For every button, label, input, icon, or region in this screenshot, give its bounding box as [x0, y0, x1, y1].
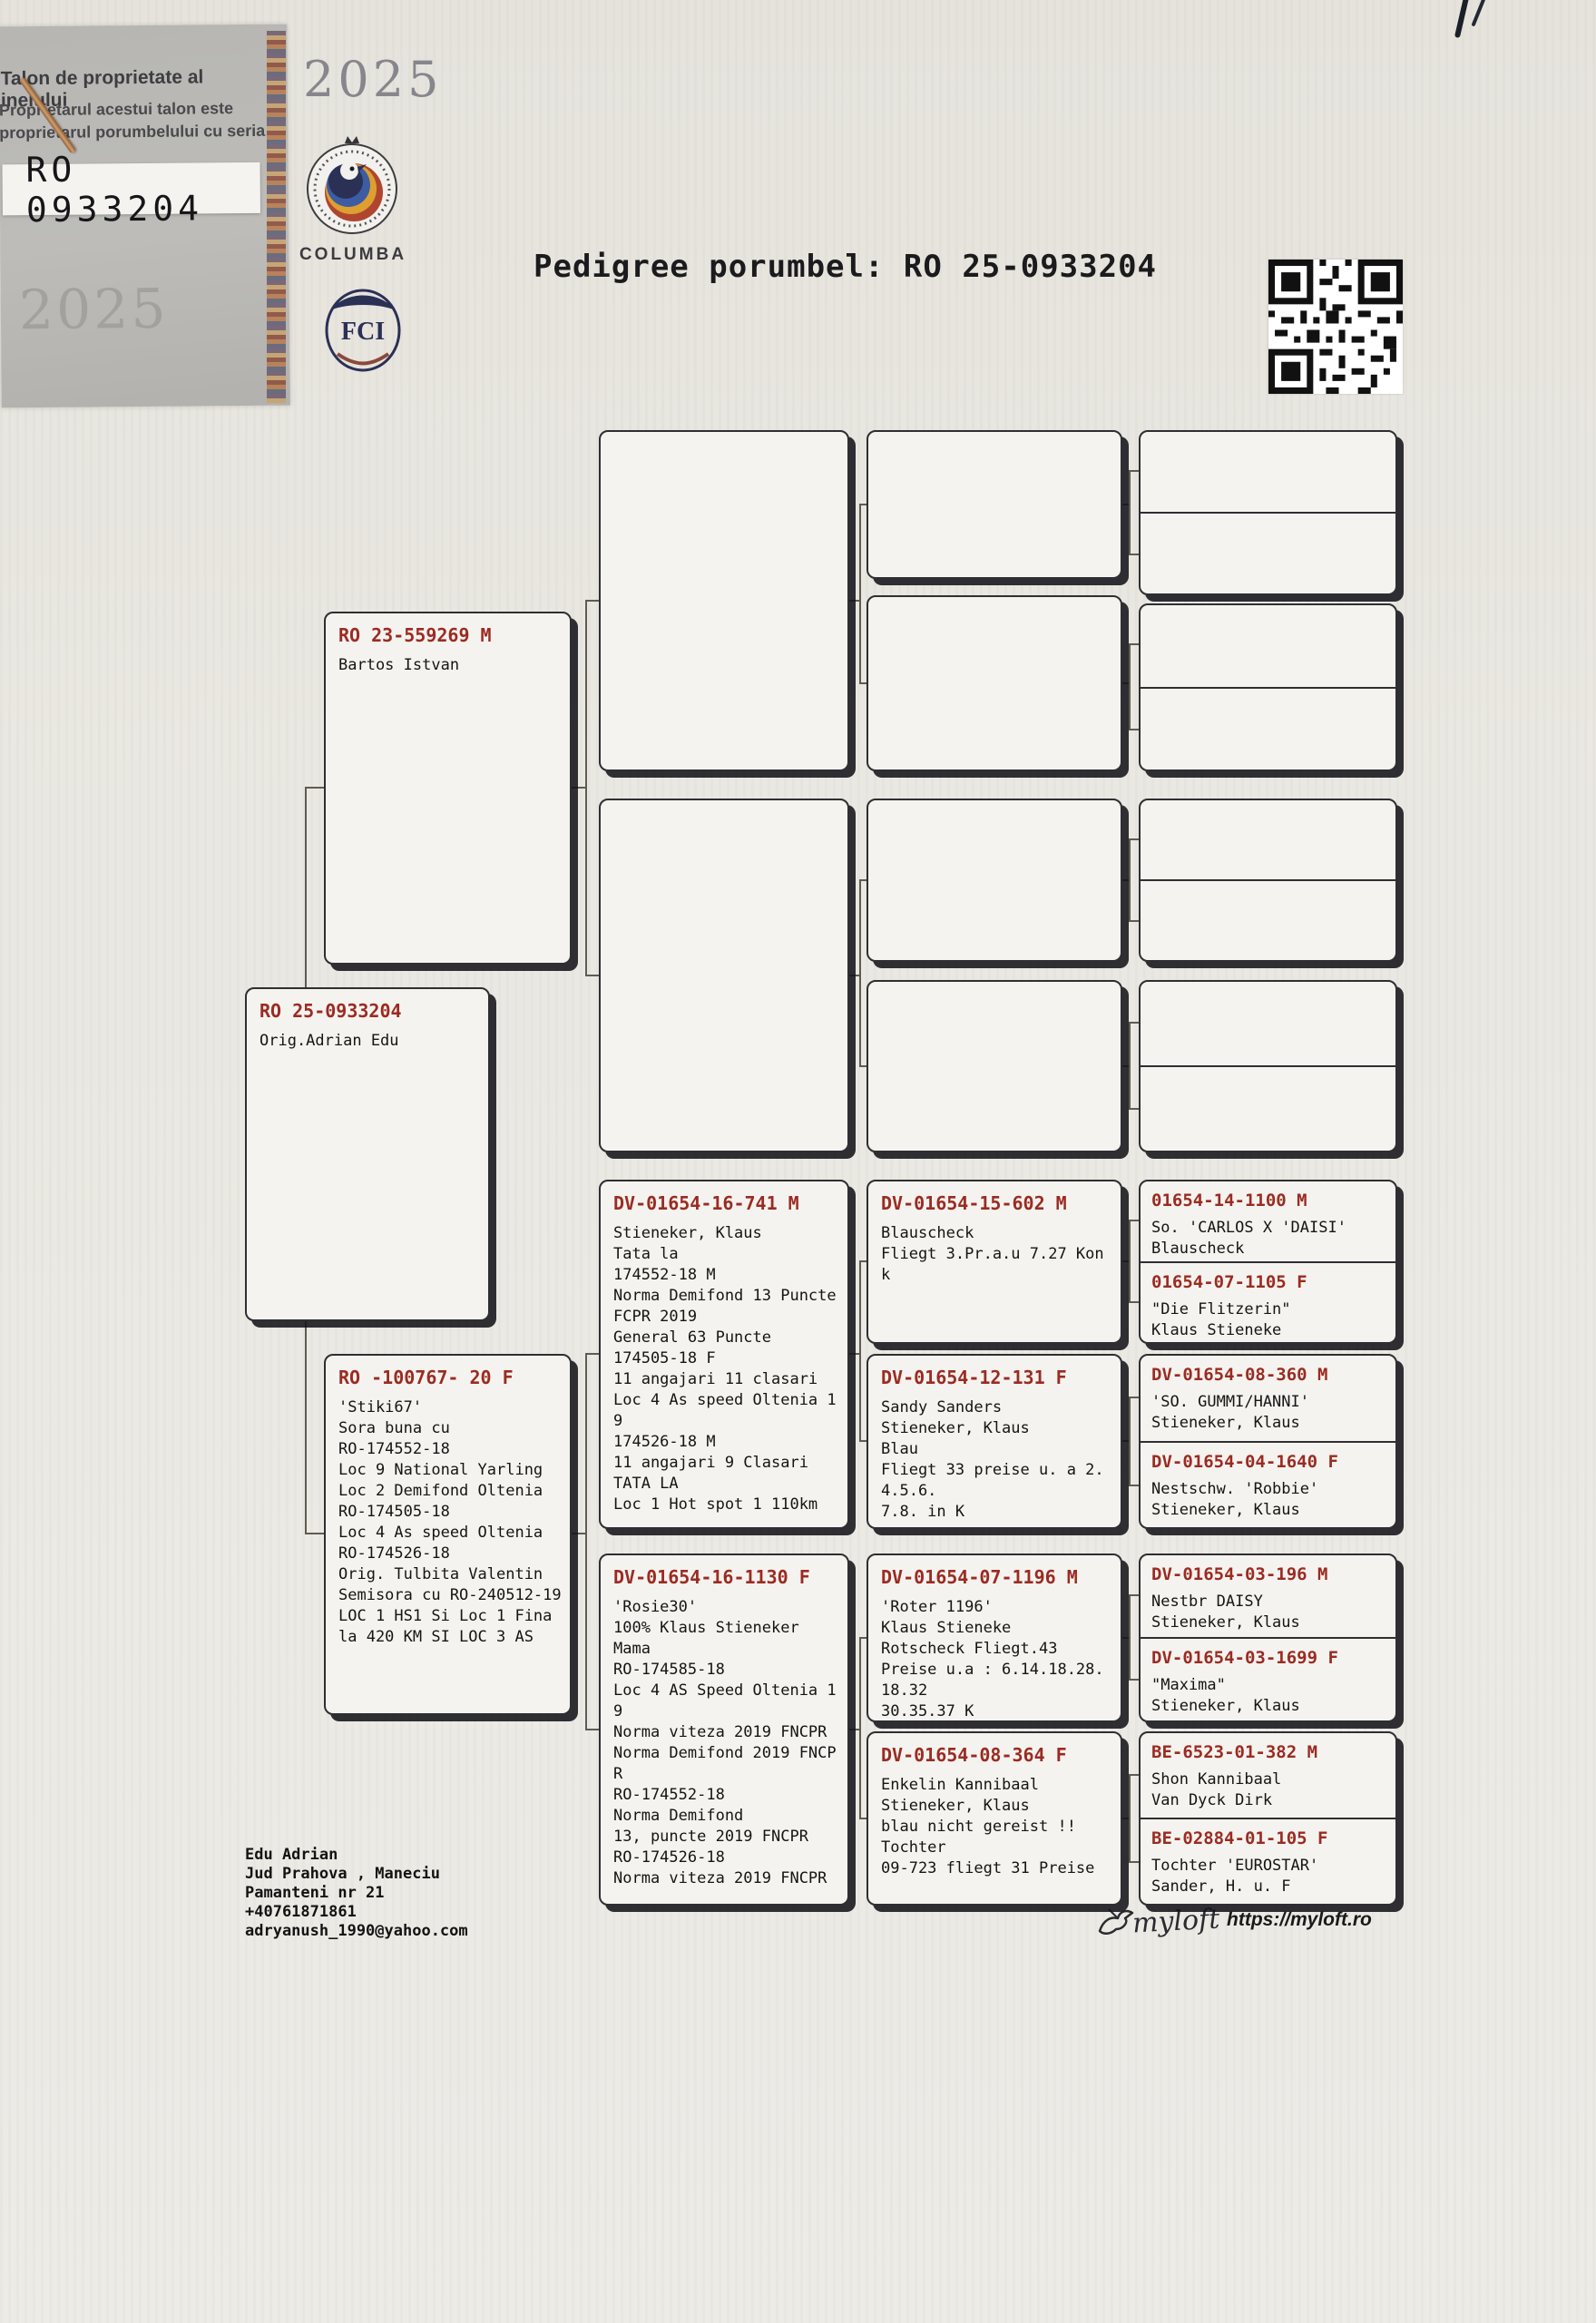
box-notes: 'Stiki67' Sora buna cu RO-174552-18 Loc …: [326, 1388, 570, 1653]
ring-id: DV-01654-12-131 F: [868, 1356, 1121, 1388]
box-notes: Bartos Istvan: [326, 646, 570, 681]
pedigree-box-subject: RO 25-0933204 Orig.Adrian Edu: [245, 987, 490, 1321]
pedigree-pair-gen4: DV-01654-03-196 M Nestbr DAISY Stieneker…: [1139, 1554, 1397, 1722]
pedigree-pair-gen4: 01654-14-1100 M So. 'CARLOS X 'DAISI' Bl…: [1139, 1180, 1397, 1344]
box-notes: 'Roter 1196' Klaus Stieneke Rotscheck Fl…: [868, 1588, 1121, 1722]
pedigree-pair-empty: [1139, 603, 1397, 771]
ring-id: RO -100767- 20 F: [326, 1356, 570, 1388]
ring-id: 01654-14-1100 M: [1141, 1181, 1395, 1211]
ring-id: DV-01654-08-364 F: [868, 1733, 1121, 1766]
ring-id: BE-02884-01-105 F: [1141, 1819, 1395, 1849]
box-notes: Tochter 'EUROSTAR' Sander, H. u. F: [1141, 1849, 1395, 1901]
box-notes: Stieneker, Klaus Tata la 174552-18 M Nor…: [601, 1214, 847, 1521]
pedigree-box-gen3-empty: [867, 430, 1122, 579]
pedigree-box-mf-mother: DV-01654-12-131 F Sandy Sanders Stieneke…: [867, 1354, 1122, 1529]
pedigree-box-mm-mother: DV-01654-08-364 F Enkelin Kannibaal Stie…: [867, 1731, 1122, 1906]
ring-id: DV-01654-15-602 M: [868, 1181, 1121, 1214]
box-notes: 'SO. GUMMI/HANNI' Stieneker, Klaus: [1141, 1386, 1395, 1437]
box-notes: Nestbr DAISY Stieneker, Klaus: [1141, 1585, 1395, 1637]
box-notes: Nestschw. 'Robbie' Stieneker, Klaus: [1141, 1473, 1395, 1524]
pedigree-box-mm-father: DV-01654-07-1196 M 'Roter 1196' Klaus St…: [867, 1554, 1122, 1722]
box-notes: Enkelin Kannibaal Stieneker, Klaus blau …: [868, 1766, 1121, 1885]
ring-id: DV-01654-16-741 M: [601, 1181, 847, 1214]
pedigree-pair-gen4: DV-01654-08-360 M 'SO. GUMMI/HANNI' Stie…: [1139, 1354, 1397, 1529]
pedigree-box-father: RO 23-559269 M Bartos Istvan: [324, 612, 572, 965]
pedigree-box-fathers-mother-empty: [599, 799, 849, 1152]
box-notes: Sandy Sanders Stieneker, Klaus Blau Flie…: [868, 1388, 1121, 1528]
box-notes: Shon Kannibaal Van Dyck Dirk: [1141, 1763, 1395, 1815]
ring-id: 01654-07-1105 F: [1141, 1263, 1395, 1293]
ring-id: DV-01654-03-196 M: [1141, 1555, 1395, 1585]
pedigree-pair-gen4: BE-6523-01-382 M Shon Kannibaal Van Dyck…: [1139, 1731, 1397, 1906]
ring-id: RO 25-0933204: [247, 989, 488, 1022]
ring-id: DV-01654-08-360 M: [1141, 1356, 1395, 1386]
pedigree-connector-lines: [0, 0, 1596, 2323]
pedigree-pair-empty: [1139, 430, 1397, 595]
box-notes: So. 'CARLOS X 'DAISI' Blauscheck: [1141, 1211, 1395, 1261]
box-notes: Orig.Adrian Edu: [247, 1022, 488, 1057]
box-notes: 'Rosie30' 100% Klaus Stieneker Mama RO-1…: [601, 1588, 847, 1895]
box-notes: "Die Flitzerin" Klaus Stieneke: [1141, 1293, 1395, 1343]
pedigree-box-gen3-empty: [867, 595, 1122, 771]
pedigree-box-mother: RO -100767- 20 F 'Stiki67' Sora buna cu …: [324, 1354, 572, 1715]
ring-id: RO 23-559269 M: [326, 613, 570, 646]
pedigree-box-mothers-mother: DV-01654-16-1130 F 'Rosie30' 100% Klaus …: [599, 1554, 849, 1906]
ring-id: DV-01654-03-1699 F: [1141, 1639, 1395, 1669]
pedigree-box-gen3-empty: [867, 799, 1122, 962]
ring-id: BE-6523-01-382 M: [1141, 1733, 1395, 1763]
ring-id: DV-01654-16-1130 F: [601, 1555, 847, 1588]
box-notes: "Maxima" Stieneker, Klaus: [1141, 1669, 1395, 1720]
pedigree-box-gen3-empty: [867, 980, 1122, 1152]
pedigree-pair-empty: [1139, 799, 1397, 962]
pedigree-box-mf-father: DV-01654-15-602 M Blauscheck Fliegt 3.Pr…: [867, 1180, 1122, 1344]
ring-id: DV-01654-04-1640 F: [1141, 1443, 1395, 1473]
pedigree-box-mothers-father: DV-01654-16-741 M Stieneker, Klaus Tata …: [599, 1180, 849, 1529]
pedigree-pair-empty: [1139, 980, 1397, 1152]
pedigree-box-fathers-father-empty: [599, 430, 849, 771]
ring-id: DV-01654-07-1196 M: [868, 1555, 1121, 1588]
box-notes: Blauscheck Fliegt 3.Pr.a.u 7.27 Kon k: [868, 1214, 1121, 1291]
